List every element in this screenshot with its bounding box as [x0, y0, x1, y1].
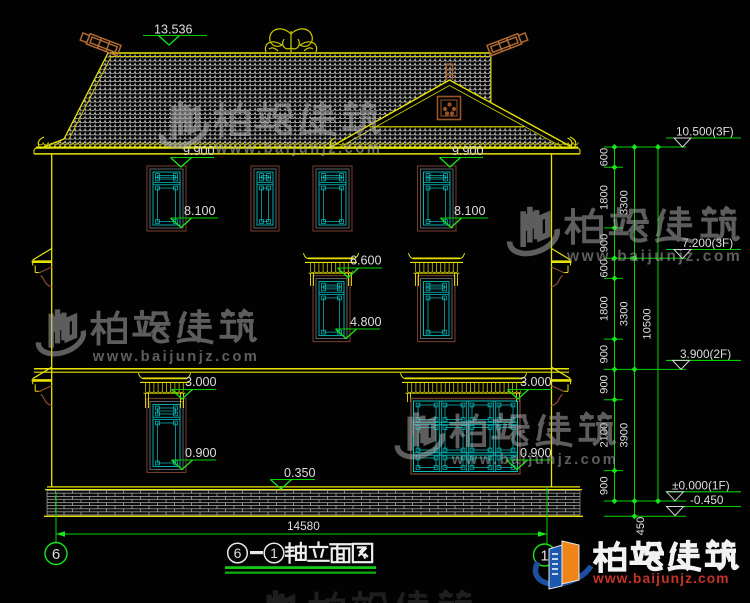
svg-text:900: 900	[599, 375, 611, 394]
svg-text:www.baijunjz.com: www.baijunjz.com	[451, 452, 619, 468]
svg-text:6.600: 6.600	[350, 254, 382, 268]
svg-text:www.baijunjz.com: www.baijunjz.com	[592, 571, 730, 586]
svg-text:4.800: 4.800	[350, 315, 382, 329]
svg-text:0.900: 0.900	[185, 446, 217, 460]
svg-text:450: 450	[635, 517, 647, 536]
svg-text:8.100: 8.100	[454, 204, 486, 218]
svg-text:0.350: 0.350	[284, 466, 316, 480]
svg-text:14580: 14580	[287, 519, 320, 533]
svg-text:3300: 3300	[619, 301, 631, 326]
svg-text:1800: 1800	[599, 185, 611, 210]
svg-text:±0.000(1F): ±0.000(1F)	[672, 478, 730, 492]
svg-text:600: 600	[599, 148, 611, 167]
svg-text:6: 6	[52, 546, 60, 563]
svg-text:www.baijunjz.com: www.baijunjz.com	[92, 349, 260, 365]
svg-text:13.536: 13.536	[154, 23, 193, 37]
svg-text:900: 900	[599, 476, 611, 495]
svg-text:1: 1	[270, 545, 278, 561]
svg-text:10.500(3F): 10.500(3F)	[676, 125, 734, 139]
svg-text:3.000: 3.000	[185, 375, 217, 389]
svg-text:3.000: 3.000	[520, 375, 552, 389]
svg-text:900: 900	[599, 345, 611, 364]
svg-text:10500: 10500	[642, 308, 654, 339]
svg-text:1800: 1800	[599, 296, 611, 321]
svg-text:3.900(2F): 3.900(2F)	[680, 347, 731, 361]
svg-text:-0.450: -0.450	[690, 493, 724, 507]
svg-text:9.900: 9.900	[452, 144, 484, 158]
svg-text:8.100: 8.100	[184, 204, 216, 218]
svg-text:www.baijunjz.com: www.baijunjz.com	[215, 141, 383, 157]
svg-text:6: 6	[234, 545, 242, 561]
svg-text:3900: 3900	[619, 423, 631, 448]
svg-text:www.baijunjz.com: www.baijunjz.com	[566, 248, 742, 265]
svg-text:1: 1	[540, 548, 548, 565]
